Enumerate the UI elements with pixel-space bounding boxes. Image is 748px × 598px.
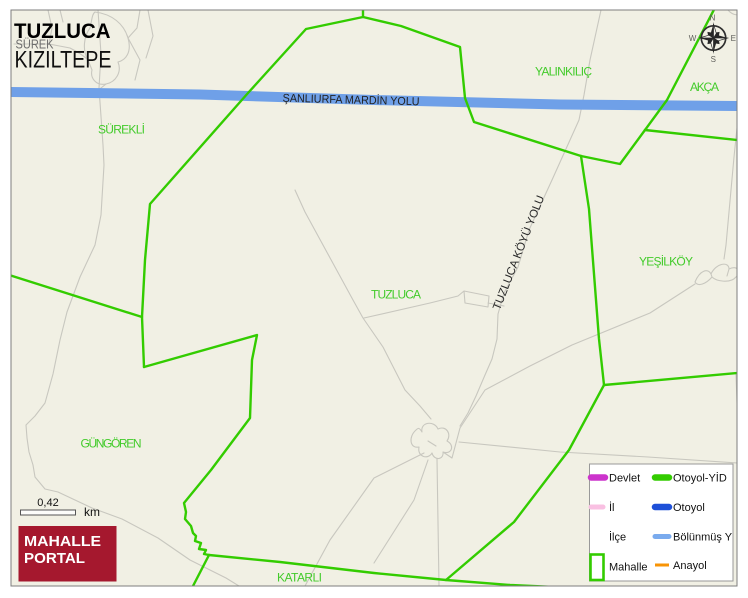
svg-text:SÜREKLİ: SÜREKLİ — [98, 123, 145, 137]
svg-text:0,42: 0,42 — [37, 497, 58, 509]
svg-text:E: E — [731, 34, 736, 43]
svg-text:İlçe: İlçe — [609, 531, 626, 544]
svg-text:GÜNGÖREN: GÜNGÖREN — [81, 437, 142, 451]
svg-text:KIZILTEPE: KIZILTEPE — [15, 47, 112, 74]
svg-text:Devlet: Devlet — [609, 473, 640, 485]
svg-text:YALINKILIÇ: YALINKILIÇ — [535, 65, 592, 79]
svg-text:TUZLUCA: TUZLUCA — [371, 288, 421, 302]
svg-text:W: W — [689, 34, 697, 43]
svg-text:MAHALLE: MAHALLE — [24, 533, 101, 550]
svg-text:km: km — [84, 505, 100, 519]
svg-text:Anayol: Anayol — [673, 560, 707, 572]
svg-text:YEŞİLKÖY: YEŞİLKÖY — [639, 255, 693, 269]
svg-text:N: N — [710, 13, 716, 22]
svg-text:PORTAL: PORTAL — [24, 550, 85, 567]
svg-text:KATARLI: KATARLI — [277, 571, 322, 585]
svg-text:Mahalle: Mahalle — [609, 562, 648, 574]
svg-text:S: S — [711, 55, 716, 64]
svg-text:AKÇA: AKÇA — [690, 80, 719, 94]
svg-text:Bölünmüş Y: Bölünmüş Y — [673, 532, 733, 544]
svg-text:İl: İl — [609, 501, 615, 514]
svg-text:Otoyol-YİD: Otoyol-YİD — [673, 472, 727, 485]
svg-text:Otoyol: Otoyol — [673, 502, 705, 514]
